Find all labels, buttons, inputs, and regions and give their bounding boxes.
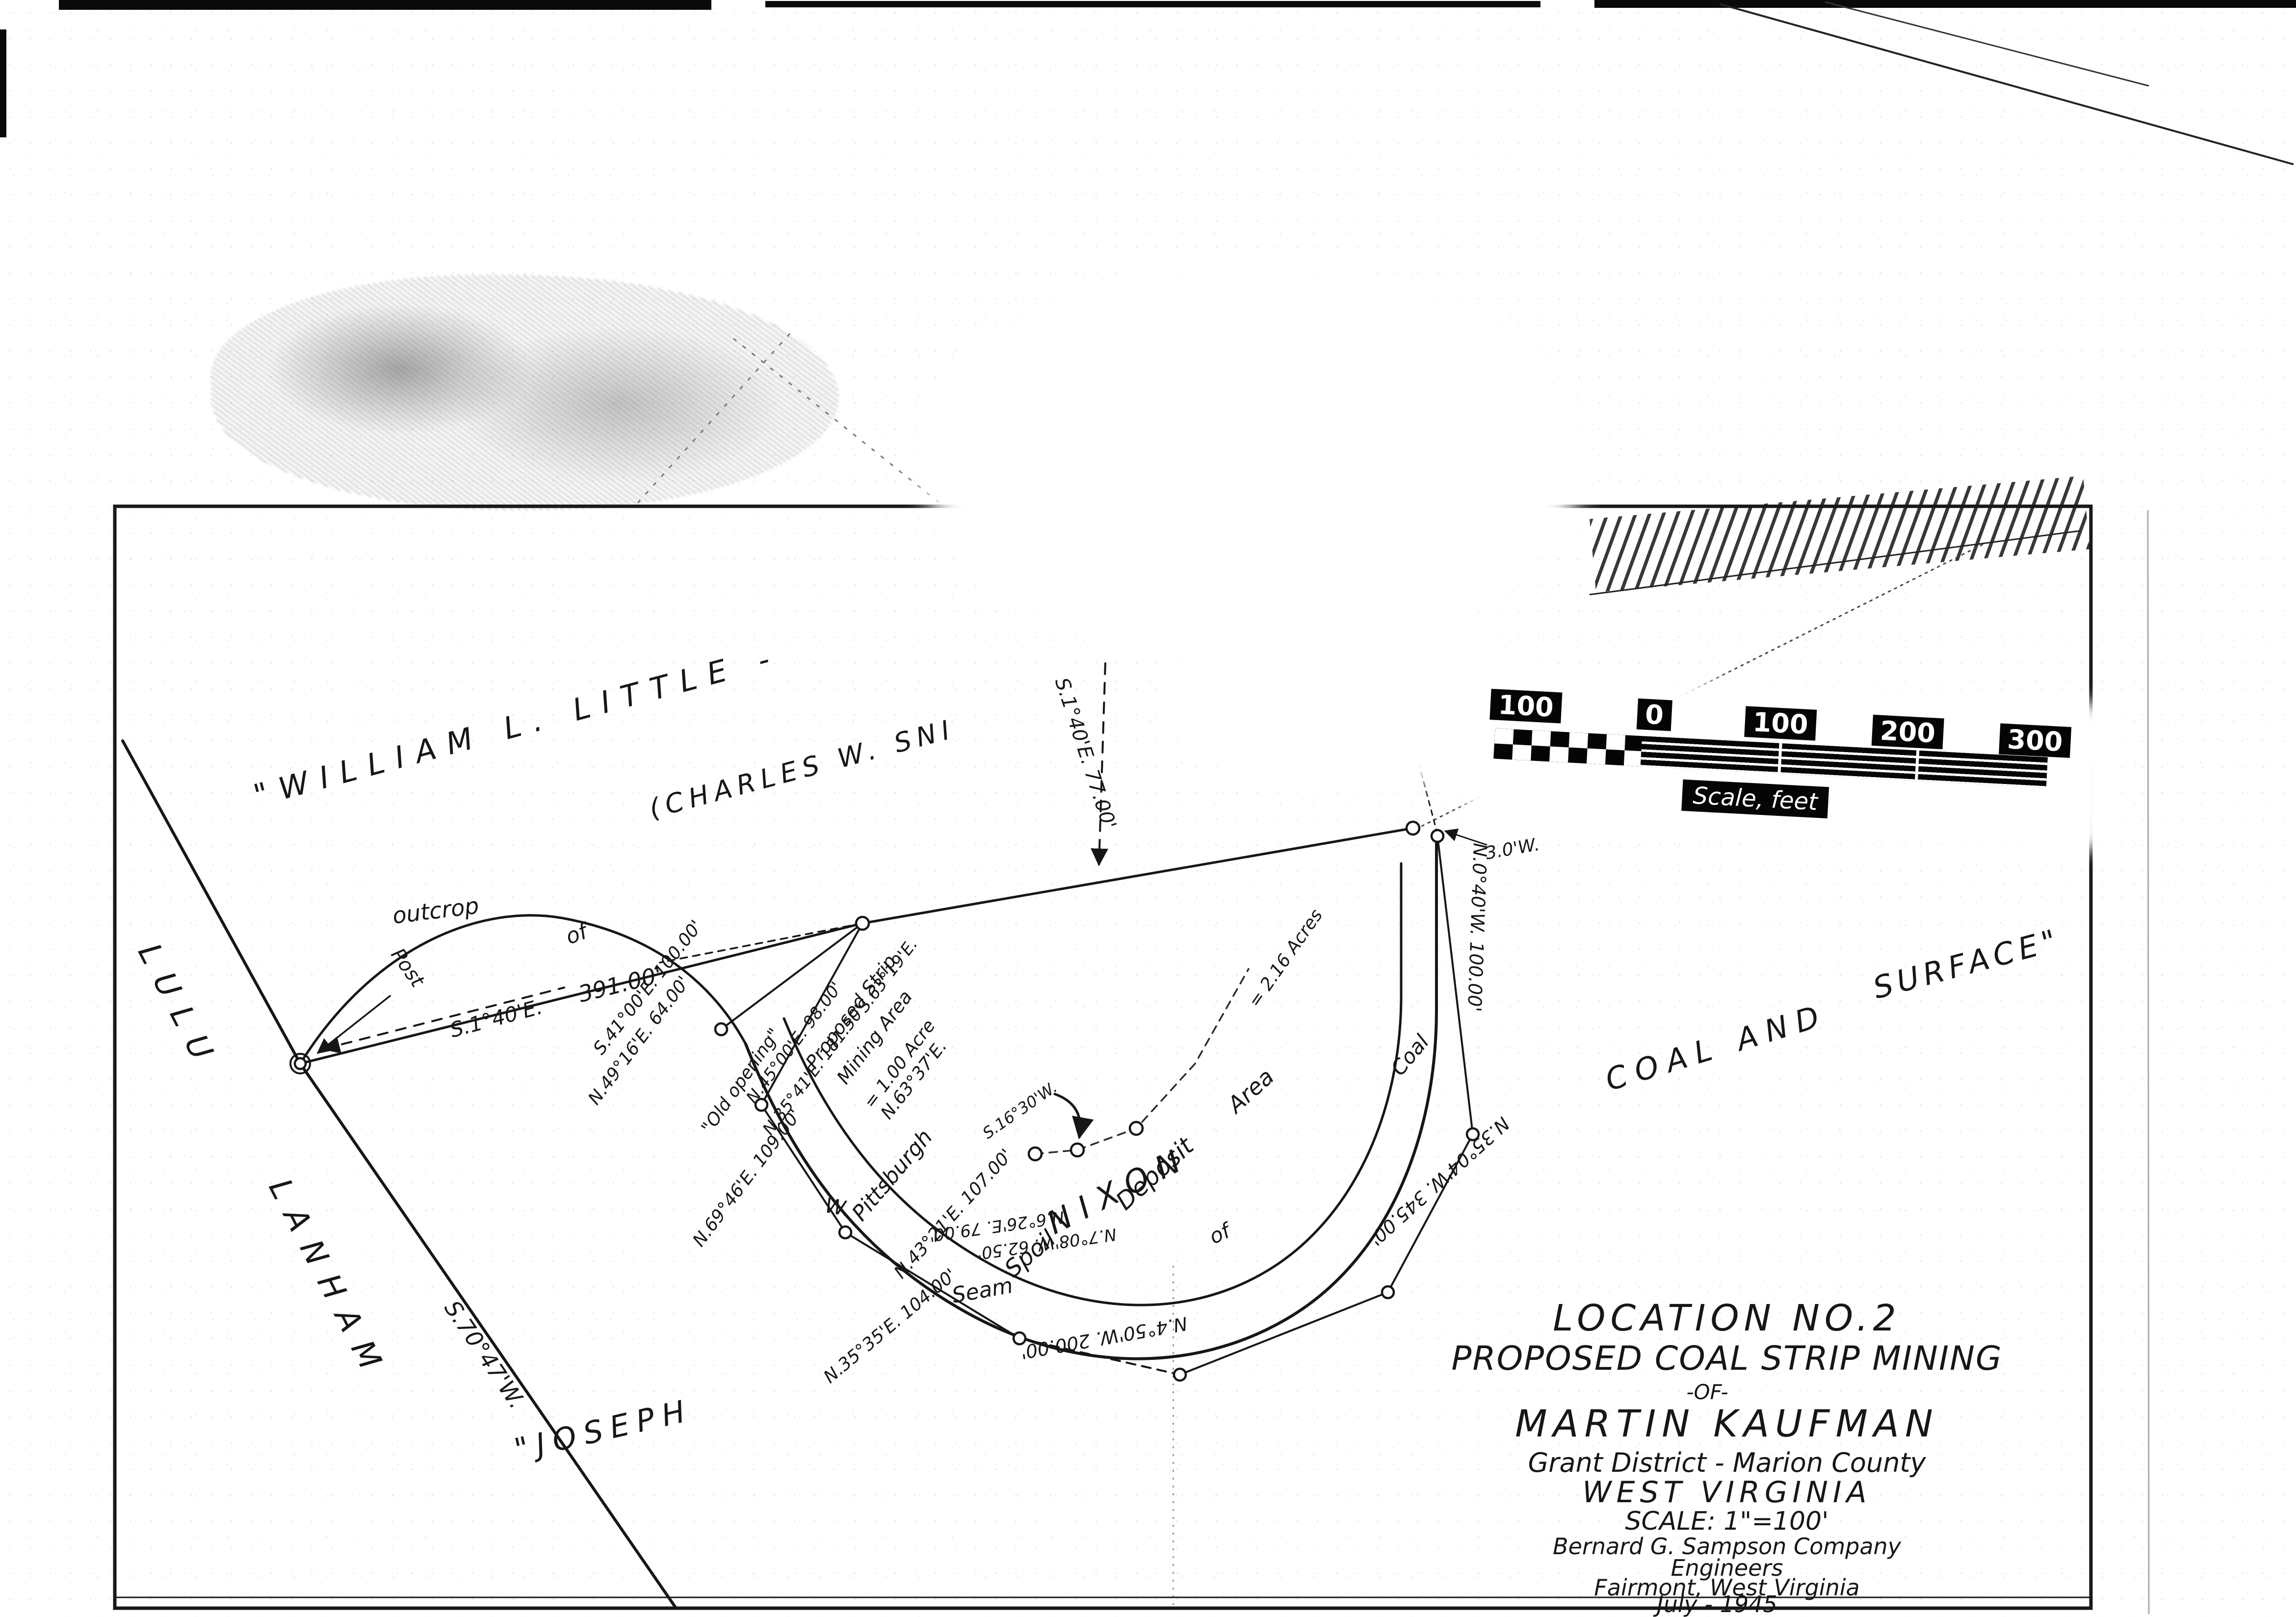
feature-label: outcrop [391, 892, 480, 929]
title-block: LOCATION NO.2 PROPOSED COAL STRIP MINING… [1451, 1297, 2002, 1617]
bearing-label: 3.0'W. [1484, 835, 1541, 864]
feature-label: W. [823, 1193, 852, 1221]
title-line: WEST VIRGINIA [1582, 1475, 1871, 1510]
station [1174, 1369, 1186, 1381]
feature-label: of [562, 918, 593, 950]
feature-label: Pittsburgh [847, 1125, 938, 1226]
station [1382, 1286, 1394, 1298]
scale-tick-label: 100 [1744, 706, 1817, 741]
title-line: Grant District - Marion County [1528, 1447, 1926, 1478]
faint-dashed-line [638, 334, 790, 503]
feature-label: Post [386, 944, 429, 991]
station [839, 1226, 851, 1238]
feature-label: Seam [950, 1273, 1015, 1308]
title-line: PROPOSED COAL STRIP MINING [1451, 1339, 2002, 1378]
thin-diagonal [1590, 531, 2080, 595]
bearing-label: N.0°40'W. 100.00' [1463, 843, 1491, 1013]
owner-label: SURFACE" [1869, 921, 2065, 1006]
bearing-label: N.4°50'W. 200.00' [1019, 1312, 1189, 1363]
bearing-label: N.35°04'W. 345.00' [1365, 1113, 1513, 1250]
owner-label: LULU [130, 938, 226, 1079]
station [1029, 1148, 1042, 1160]
station [856, 917, 869, 930]
title-line: MARTIN KAUFMAN [1515, 1402, 1939, 1445]
property-line-west [123, 741, 676, 1608]
fence-line-east [862, 828, 1413, 923]
scale-tick-label: 0 [1637, 699, 1672, 731]
pit-arc-outer [746, 836, 1436, 1359]
owner-label: LANHAM [261, 1173, 395, 1388]
title-line: LOCATION NO.2 [1553, 1297, 1901, 1339]
post-station [295, 1058, 306, 1069]
scale-tick-label: 300 [1999, 723, 2071, 758]
washout-area [922, 265, 1585, 657]
owner-label: COAL AND [1601, 996, 1832, 1098]
faint-dashed-line [733, 339, 939, 503]
corner-line [1825, 2, 2149, 86]
owner-label: "JOSEPH [511, 1392, 696, 1467]
traverse-chain [1180, 836, 1473, 1375]
scanned-map-sheet: "WILLIAM L. LITTLE - (CHARLES W. SNI ...… [0, 0, 2296, 1617]
feature-label: of [1205, 1217, 1236, 1249]
paper-edge [2148, 510, 2149, 1614]
corner-line [1720, 4, 2294, 164]
title-line: July - 1945 [1653, 1591, 1777, 1617]
scale-tick-label: 100 [1489, 689, 1562, 724]
title-line: -OF- [1686, 1380, 1728, 1404]
station [1432, 830, 1443, 842]
scale-tick-label: 200 [1872, 715, 1944, 750]
feature-label: Area [1221, 1063, 1279, 1119]
station [715, 1023, 727, 1035]
bearing-label: N.35°35'E. 104.00' [820, 1265, 960, 1387]
bearing-label: S.16°30'W. [979, 1078, 1061, 1143]
station [1071, 1144, 1084, 1156]
bearing-label: S.1°40'E. [447, 994, 545, 1042]
owner-label: (CHARLES W. SNI [646, 713, 959, 824]
curved-arrow [1055, 1094, 1080, 1137]
feature-label: = 2.16 Acres [1245, 906, 1327, 1011]
graphic-scale-bar: 100 0 100 200 300 Scale, feet [1485, 686, 2094, 840]
bearing-label: S.1°40'E. 77.00' [1050, 675, 1121, 832]
station [1130, 1122, 1143, 1135]
bearing-label: S.70°47'W. [439, 1296, 530, 1413]
title-line: SCALE: 1"=100' [1625, 1507, 1829, 1536]
station [1407, 822, 1419, 835]
